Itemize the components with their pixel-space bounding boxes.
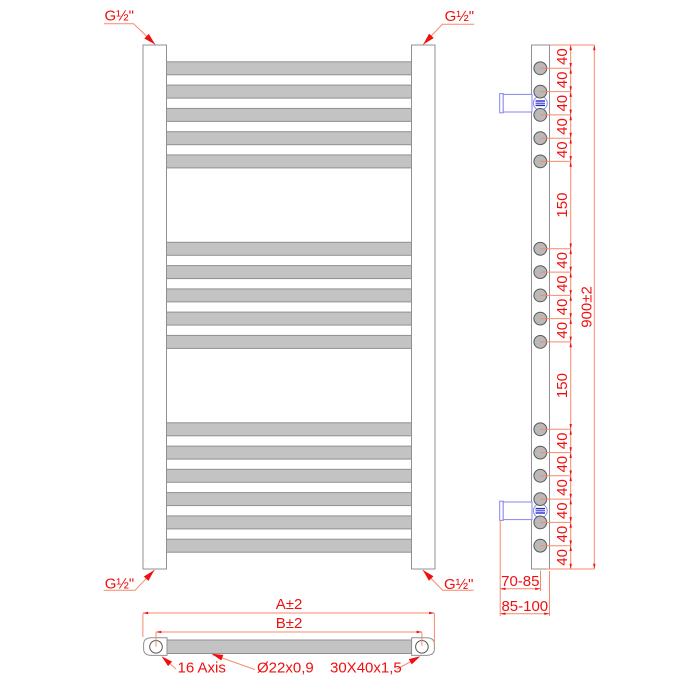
svg-text:85-100: 85-100	[501, 598, 548, 615]
svg-text:40: 40	[554, 299, 571, 316]
svg-text:40: 40	[554, 322, 571, 339]
svg-text:150: 150	[554, 373, 571, 398]
svg-text:16 Axis: 16 Axis	[178, 660, 226, 677]
svg-text:Ø22x0,9: Ø22x0,9	[257, 660, 314, 677]
svg-text:A±2: A±2	[276, 596, 303, 613]
svg-text:30X40x1,5: 30X40x1,5	[330, 660, 402, 677]
svg-text:40: 40	[554, 526, 571, 543]
svg-text:40: 40	[554, 479, 571, 496]
svg-text:900±2: 900±2	[578, 286, 595, 328]
svg-text:G½": G½"	[105, 8, 135, 25]
svg-text:40: 40	[554, 252, 571, 269]
svg-text:40: 40	[554, 456, 571, 473]
svg-text:40: 40	[554, 48, 571, 65]
svg-text:70-85: 70-85	[501, 573, 539, 590]
svg-text:150: 150	[554, 193, 571, 218]
svg-text:40: 40	[554, 72, 571, 89]
svg-text:40: 40	[554, 118, 571, 135]
svg-text:40: 40	[554, 433, 571, 450]
svg-text:40: 40	[554, 95, 571, 112]
svg-text:G½": G½"	[445, 8, 475, 25]
svg-text:B±2: B±2	[276, 615, 303, 632]
svg-text:40: 40	[554, 275, 571, 292]
svg-text:40: 40	[554, 502, 571, 519]
svg-text:40: 40	[554, 549, 571, 566]
svg-text:40: 40	[554, 141, 571, 158]
